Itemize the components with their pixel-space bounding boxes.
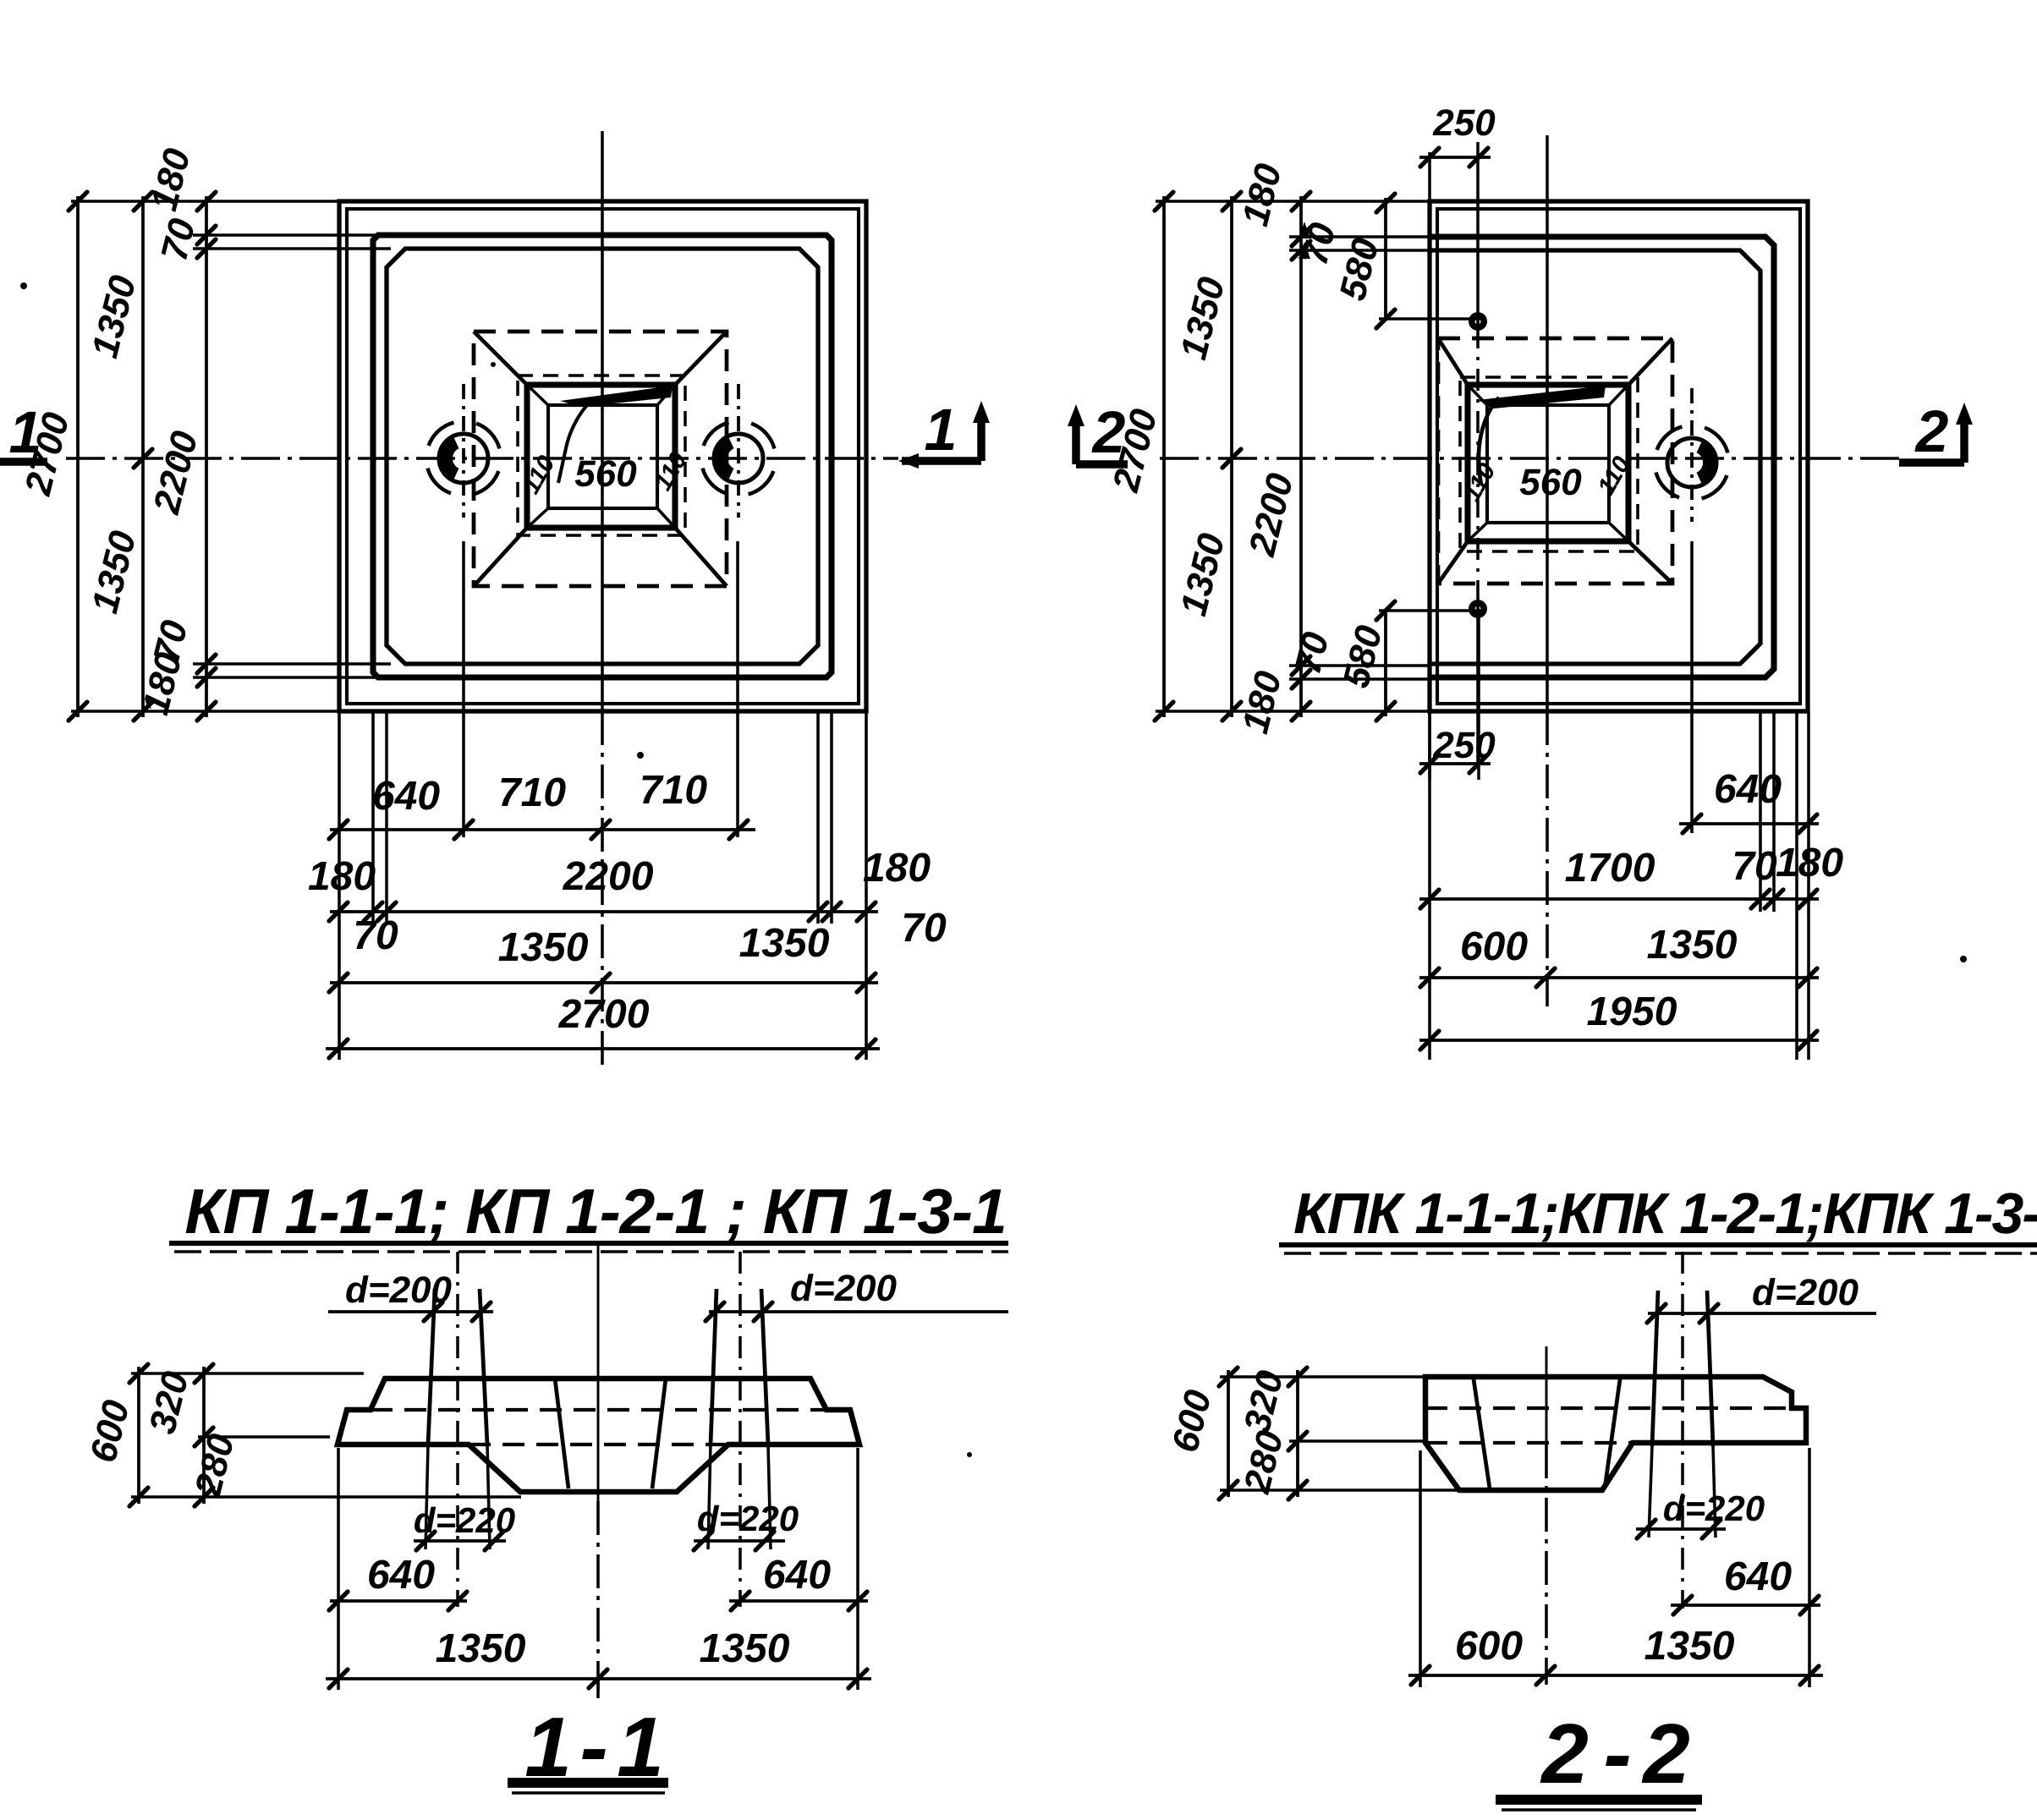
svg-text:640: 640 (1714, 767, 1782, 812)
svg-text:КПК 1-1-1;КПК 1-2-1;КПК 1-3-1: КПК 1-1-1;КПК 1-2-1;КПК 1-3-1 (1293, 1181, 2037, 1246)
svg-text:d=220: d=220 (1663, 1488, 1765, 1528)
svg-text:710: 710 (640, 768, 707, 813)
svg-text:560: 560 (1519, 462, 1582, 503)
svg-text:2: 2 (1641, 1707, 1690, 1801)
svg-text:70: 70 (1732, 844, 1777, 889)
svg-text:180: 180 (1776, 841, 1843, 885)
svg-text:1700: 1700 (1565, 846, 1655, 891)
svg-text:640: 640 (1724, 1554, 1792, 1599)
svg-text:640: 640 (763, 1553, 831, 1598)
svg-text:2200: 2200 (563, 854, 654, 899)
svg-text:2: 2 (1091, 399, 1126, 465)
svg-text:710: 710 (498, 770, 566, 815)
svg-text:2: 2 (1540, 1707, 1589, 1801)
svg-text:d=200: d=200 (790, 1268, 898, 1309)
svg-text:2700: 2700 (558, 992, 650, 1037)
svg-text:1350: 1350 (739, 921, 830, 966)
svg-text:180: 180 (308, 854, 376, 899)
svg-text:70: 70 (901, 906, 947, 951)
svg-text:1350: 1350 (1644, 1624, 1735, 1669)
svg-text:КП 1-1-1; КП 1-2-1 ; КП 1-3-1: КП 1-1-1; КП 1-2-1 ; КП 1-3-1 (184, 1176, 1006, 1247)
svg-text:600: 600 (1460, 924, 1528, 969)
svg-text:180: 180 (863, 846, 931, 891)
svg-text:2: 2 (1914, 398, 1949, 464)
svg-text:1350: 1350 (498, 925, 589, 970)
svg-text:70: 70 (353, 913, 398, 958)
svg-text:640: 640 (372, 774, 440, 819)
svg-text:-: - (1603, 1707, 1631, 1801)
svg-text:250: 250 (1432, 102, 1496, 144)
svg-text:d=200: d=200 (1752, 1272, 1859, 1313)
svg-text:1350: 1350 (436, 1626, 526, 1671)
svg-text:600: 600 (1455, 1624, 1523, 1669)
svg-text:1: 1 (9, 399, 42, 465)
svg-text:1: 1 (925, 397, 958, 463)
svg-text:1950: 1950 (1587, 989, 1677, 1034)
svg-text:250: 250 (1432, 725, 1496, 766)
svg-text:1350: 1350 (700, 1626, 790, 1671)
svg-text:1350: 1350 (1647, 923, 1738, 968)
svg-text:640: 640 (367, 1553, 435, 1598)
